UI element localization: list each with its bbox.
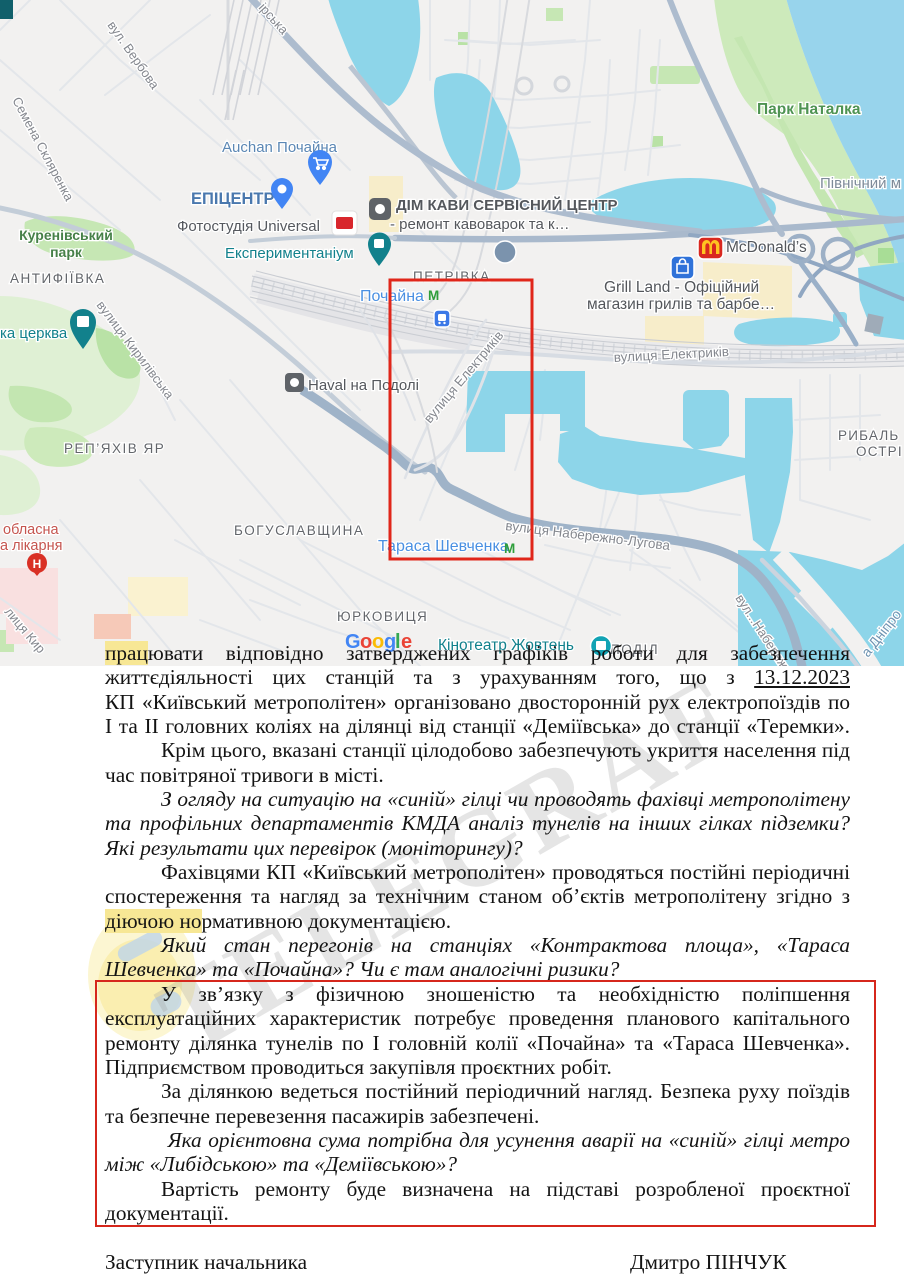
- svg-text:Експериментаніум: Експериментаніум: [225, 245, 354, 262]
- svg-text:ЕПІЦЕНТР: ЕПІЦЕНТР: [191, 190, 275, 208]
- svg-text:РИБАЛЬ: РИБАЛЬ: [838, 428, 900, 443]
- svg-text:Haval на Подолі: Haval на Подолі: [308, 377, 419, 394]
- svg-text:Почайна: Почайна: [360, 288, 424, 305]
- svg-text:магазин грилів та барбе…: магазин грилів та барбе…: [587, 296, 775, 313]
- svg-text:обласнаа лікарня: обласнаа лікарня: [0, 522, 62, 554]
- svg-text:Північний м: Північний м: [820, 175, 901, 192]
- svg-text:БОГУСЛАВЩИНА: БОГУСЛАВЩИНА: [234, 523, 364, 538]
- svg-text:М: М: [428, 288, 439, 303]
- svg-text:McDonald’s: McDonald’s: [726, 239, 807, 256]
- svg-text:М: М: [504, 541, 515, 556]
- svg-text:H: H: [33, 557, 42, 571]
- svg-text:ДІМ КАВИ СЕРВІСНИЙ ЦЕНТР: ДІМ КАВИ СЕРВІСНИЙ ЦЕНТР: [396, 196, 617, 214]
- svg-text:Тараса Шевченка: Тараса Шевченка: [378, 538, 509, 555]
- svg-text:Grill Land - Офіційний: Grill Land - Офіційний: [604, 279, 759, 296]
- svg-text:АНТИФІЇВКА: АНТИФІЇВКА: [10, 271, 105, 286]
- svg-text:ЮРКОВИЦЯ: ЮРКОВИЦЯ: [337, 609, 428, 624]
- svg-text:- ремонт кавоварок та к…: - ремонт кавоварок та к…: [390, 216, 570, 233]
- svg-text:Фотостудія Universal: Фотостудія Universal: [177, 218, 320, 235]
- svg-text:РЕП’ЯХІВ ЯР: РЕП’ЯХІВ ЯР: [64, 441, 165, 456]
- svg-text:ка церква: ка церква: [0, 325, 68, 342]
- svg-text:ПЕТРІВКА: ПЕТРІВКА: [413, 269, 491, 284]
- svg-text:ОСТРІ: ОСТРІ: [856, 444, 903, 459]
- svg-text:Парк Наталка: Парк Наталка: [757, 101, 861, 118]
